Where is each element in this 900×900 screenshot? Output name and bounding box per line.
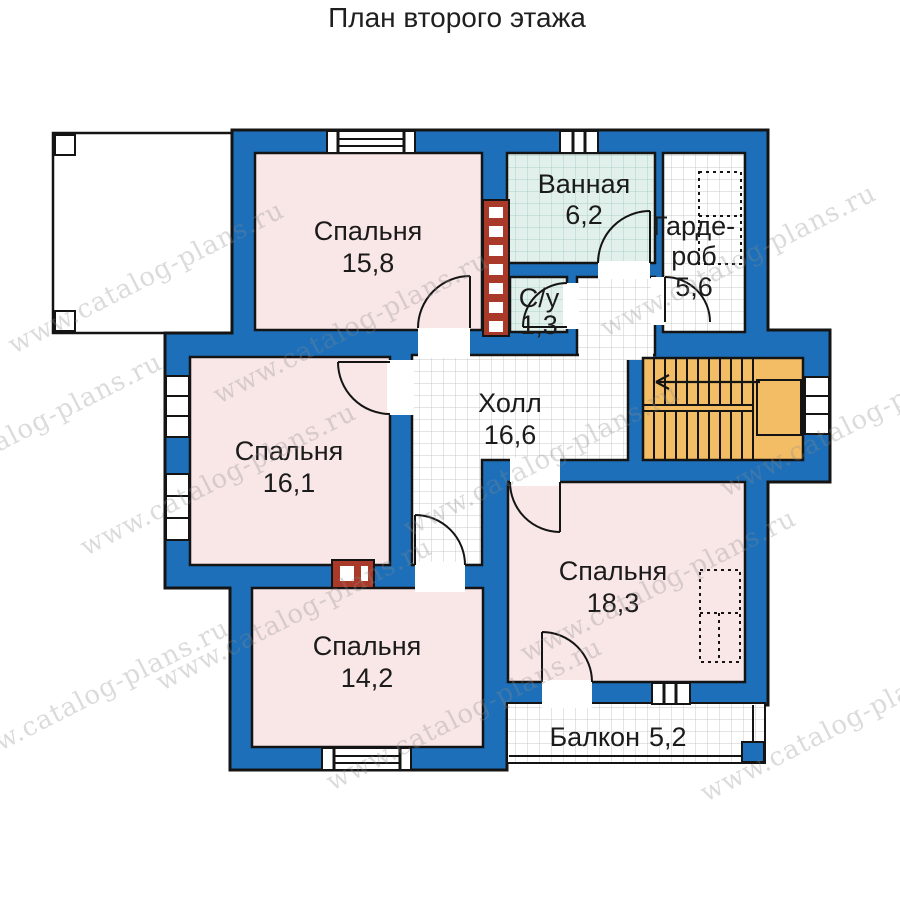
room-label-bedroom-top: Спальня xyxy=(314,216,423,246)
window-balcony-door-side xyxy=(652,683,690,704)
room-label-hall: Холл xyxy=(478,388,542,418)
area-label-bedroom-bottom: 14,2 xyxy=(341,663,394,693)
area-label-wc: 1,3 xyxy=(520,310,558,340)
area-label-hall: 16,6 xyxy=(484,420,537,450)
room-label-bathroom: Ванная xyxy=(538,169,630,199)
terrace-post xyxy=(55,135,75,155)
window-left-upper xyxy=(166,376,189,437)
window-vent-top xyxy=(560,131,598,153)
area-label-bedroom-left: 16,1 xyxy=(263,468,316,498)
room-label-wardrobe-1: Гарде- xyxy=(653,211,735,241)
area-label-bathroom: 6,2 xyxy=(565,200,603,230)
balcony-area: 5,2 xyxy=(649,722,687,752)
room-label-balcony: Балкон5,2 xyxy=(549,722,686,752)
floor-plan: План второго этажа xyxy=(0,0,900,900)
room-label-bedroom-bottom: Спальня xyxy=(313,631,422,661)
window-top xyxy=(327,131,415,153)
balcony-name: Балкон xyxy=(549,722,640,752)
floor-plan-page: План второго этажа xyxy=(0,0,900,900)
page-title: План второго этажа xyxy=(328,2,586,33)
room-label-wc: С/у xyxy=(519,283,560,313)
area-label-bedroom-top: 15,8 xyxy=(342,248,395,278)
